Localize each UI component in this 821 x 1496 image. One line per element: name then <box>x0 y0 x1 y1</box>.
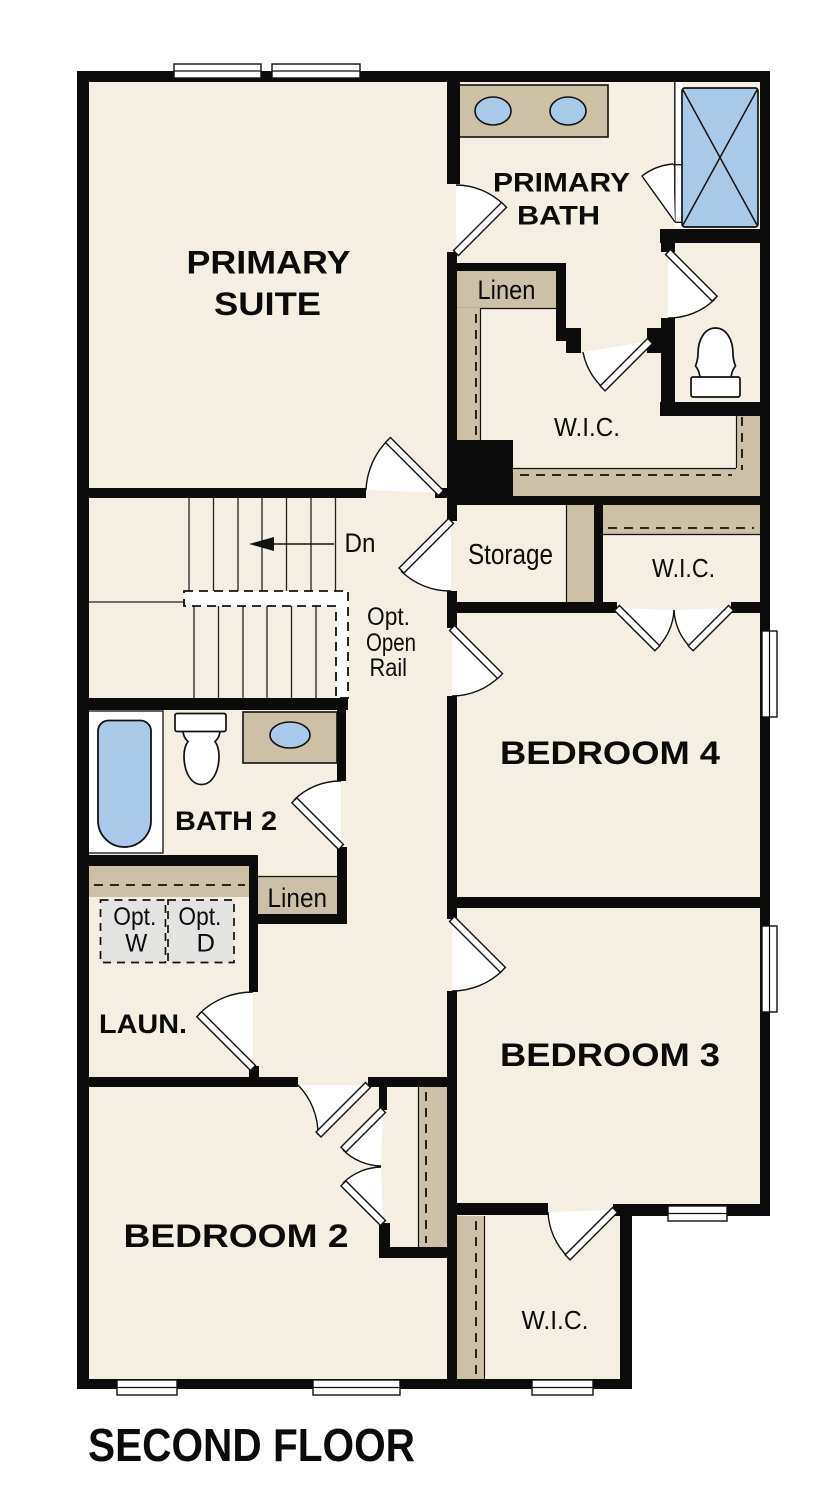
svg-text:PRIMARY: PRIMARY <box>187 245 351 281</box>
svg-text:SUITE: SUITE <box>214 286 321 322</box>
svg-text:SECOND FLOOR: SECOND FLOOR <box>88 1419 415 1471</box>
svg-text:BEDROOM 4: BEDROOM 4 <box>500 735 720 771</box>
svg-text:Storage: Storage <box>468 539 553 571</box>
svg-text:W.I.C.: W.I.C. <box>554 412 620 442</box>
svg-text:BATH: BATH <box>517 201 600 231</box>
svg-text:PRIMARY: PRIMARY <box>493 168 630 198</box>
svg-text:Open: Open <box>366 629 416 657</box>
svg-text:Opt.: Opt. <box>178 903 221 931</box>
svg-text:Dn: Dn <box>345 528 376 558</box>
svg-text:Linen: Linen <box>268 883 328 913</box>
svg-text:BEDROOM 3: BEDROOM 3 <box>500 1037 720 1073</box>
svg-text:Rail: Rail <box>370 654 408 682</box>
svg-text:W: W <box>125 930 147 958</box>
svg-text:LAUN.: LAUN. <box>99 1009 187 1039</box>
svg-text:Linen: Linen <box>478 275 536 305</box>
svg-text:BEDROOM 2: BEDROOM 2 <box>124 1218 349 1254</box>
svg-text:D: D <box>197 930 216 958</box>
svg-text:Opt.: Opt. <box>113 903 156 931</box>
svg-text:Opt.: Opt. <box>367 603 410 631</box>
svg-text:W.I.C.: W.I.C. <box>652 555 715 583</box>
svg-text:W.I.C.: W.I.C. <box>522 1305 589 1335</box>
svg-text:BATH 2: BATH 2 <box>175 806 277 836</box>
